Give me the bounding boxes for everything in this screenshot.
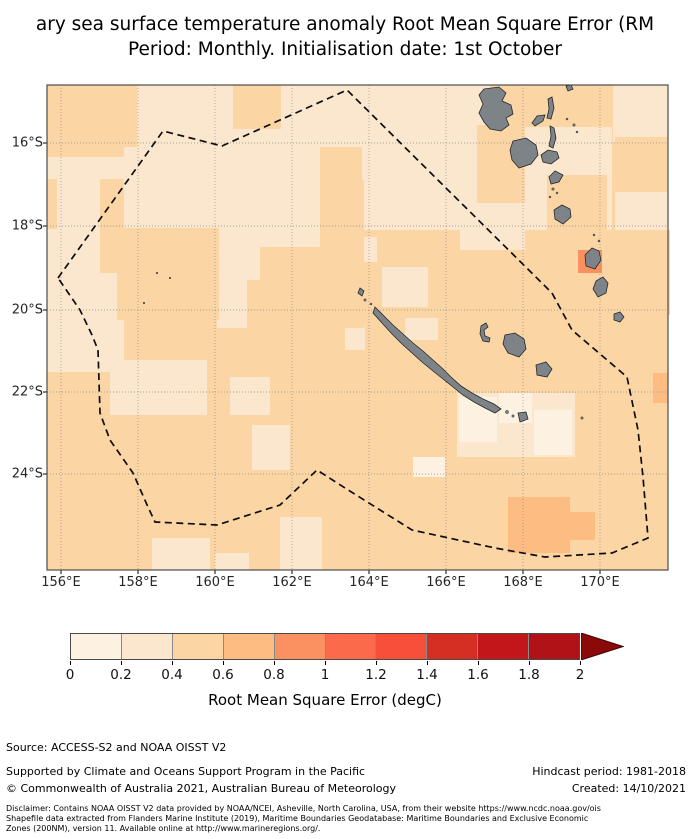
- rmse-cell-patch: [247, 280, 309, 330]
- disclaimer-text: Disclaimer: Contains NOAA OISST V2 data …: [6, 804, 690, 833]
- latitude-tick-label: 18°S: [12, 219, 43, 234]
- colorbar-segment: [375, 634, 426, 659]
- colorbar-segment: [274, 634, 325, 659]
- colorbar-tick-mark: [529, 661, 530, 665]
- rmse-cell-patch: [345, 325, 365, 350]
- colorbar-tick-label: 1: [321, 667, 330, 683]
- rmse-cell-patch: [613, 85, 668, 142]
- rmse-cell-patch: [320, 180, 364, 328]
- disclaimer-line: Zones (200NM), version 11. Available onl…: [6, 824, 690, 834]
- colorbar-tick-label: 1.2: [365, 667, 386, 683]
- colorbar-tick-label: 0: [66, 667, 75, 683]
- colorbar-over-triangle: [581, 633, 623, 660]
- colorbar-tick-mark: [70, 661, 71, 665]
- islet-dot: [364, 299, 366, 301]
- longitude-tick-label: 164°E: [349, 575, 389, 590]
- colorbar-tick-label: 1.8: [518, 667, 539, 683]
- longitude-tick-label: 168°E: [503, 575, 543, 590]
- longitude-tick-label: 170°E: [580, 575, 620, 590]
- rmse-cell-patch: [405, 318, 438, 340]
- latitude-tick-label: 22°S: [12, 385, 43, 400]
- disclaimer-line: Shapefile data extracted from Flanders M…: [6, 814, 690, 824]
- colorbar-tick-mark: [376, 661, 377, 665]
- colorbar-tick-mark: [478, 661, 479, 665]
- latitude-tick-label: 24°S: [12, 467, 43, 482]
- latitude-tick-label: 20°S: [12, 303, 43, 318]
- rmse-cell-patch: [233, 85, 281, 129]
- data-source-text: Source: ACCESS-S2 and NOAA OISST V2: [6, 741, 226, 754]
- rmse-cell-patch: [215, 553, 249, 570]
- colorbar-tick-mark: [121, 661, 122, 665]
- islet-dot: [512, 415, 514, 417]
- rmse-cell-patch: [110, 360, 207, 415]
- colorbar-tick-mark: [172, 661, 173, 665]
- longitude-tick-label: 158°E: [118, 575, 158, 590]
- islet-dot: [598, 240, 600, 242]
- colorbar-segment: [528, 634, 579, 659]
- islet-dot: [552, 188, 554, 190]
- colorbar-tick-mark: [274, 661, 275, 665]
- colorbar-tick-mark: [223, 661, 224, 665]
- rmse-cell-patch: [382, 267, 428, 307]
- map-area: [47, 85, 668, 570]
- colorbar-tick-label: 2: [576, 667, 585, 683]
- rmse-cell-patch: [280, 517, 322, 570]
- footer-row-support: Supported by Climate and Oceans Support …: [6, 765, 686, 778]
- islet-dot: [573, 124, 575, 126]
- reef-dot: [156, 272, 158, 274]
- colorbar-segment: [426, 634, 477, 659]
- longitude-tick-label: 160°E: [195, 575, 235, 590]
- rmse-cell-patch: [117, 228, 219, 320]
- figure-canvas: { "title": { "line1": "ary sea surface t…: [0, 0, 690, 839]
- islet-dot: [576, 131, 578, 133]
- copyright-text: © Commonwealth of Australia 2021, Austra…: [6, 782, 396, 795]
- colorbar-tick-label: 0.8: [263, 667, 284, 683]
- colorbar-segment: [121, 634, 172, 659]
- colorbar-tick-label: 0.2: [110, 667, 131, 683]
- rmse-map: [47, 85, 668, 570]
- colorbar-axis-label: Root Mean Square Error (degC): [70, 691, 580, 709]
- longitude-tick-label: 162°E: [272, 575, 312, 590]
- colorbar-over-arrow: [581, 633, 624, 660]
- hindcast-period-text: Hindcast period: 1981-2018: [532, 765, 686, 778]
- colorbar: [70, 633, 580, 660]
- disclaimer-line: Disclaimer: Contains NOAA OISST V2 data …: [6, 804, 690, 814]
- colorbar-tick-mark: [325, 661, 326, 665]
- colorbar-tick-label: 0.6: [212, 667, 233, 683]
- rmse-cell-patch: [460, 230, 525, 250]
- rmse-cell-patch: [615, 137, 668, 192]
- rmse-cell-patch: [252, 425, 290, 470]
- figure-title: ary sea surface temperature anomaly Root…: [36, 14, 654, 36]
- islet-dot: [593, 234, 595, 236]
- rmse-cell-patch: [47, 179, 57, 229]
- rmse-cell-patch: [508, 497, 570, 553]
- islet-dot: [370, 303, 372, 305]
- rmse-cell-patch: [570, 512, 595, 540]
- supported-by-text: Supported by Climate and Oceans Support …: [6, 765, 365, 778]
- rmse-cell-patch: [534, 410, 572, 455]
- colorbar-tick-label: 0.4: [161, 667, 182, 683]
- rmse-cell-patch: [152, 538, 210, 570]
- colorbar-segment: [71, 634, 121, 659]
- reef-dot: [143, 302, 145, 304]
- islet-dot: [581, 417, 583, 419]
- rmse-cell-patch: [230, 377, 270, 415]
- rmse-cell-patch: [653, 373, 668, 403]
- islet-dot: [549, 196, 551, 198]
- longitude-tick-label: 166°E: [426, 575, 466, 590]
- footer-row-copyright: © Commonwealth of Australia 2021, Austra…: [6, 782, 686, 795]
- colorbar-tick-label: 1.6: [467, 667, 488, 683]
- islet-dot: [556, 192, 558, 194]
- reef-dot: [169, 277, 171, 279]
- longitude-tick-label: 156°E: [41, 575, 81, 590]
- colorbar-tick-label: 1.4: [416, 667, 437, 683]
- colorbar-segment: [172, 634, 223, 659]
- colorbar-segment: [477, 634, 528, 659]
- colorbar-segment: [223, 634, 274, 659]
- colorbar-tick-mark: [427, 661, 428, 665]
- latitude-tick-label: 16°S: [12, 136, 43, 151]
- colorbar-tick-mark: [580, 661, 581, 665]
- created-date-text: Created: 14/10/2021: [572, 782, 686, 795]
- colorbar-segment: [325, 634, 376, 659]
- islet-dot: [566, 118, 568, 120]
- figure-subtitle: Period: Monthly. Initialisation date: 1s…: [0, 39, 690, 61]
- islet-dot: [505, 410, 508, 413]
